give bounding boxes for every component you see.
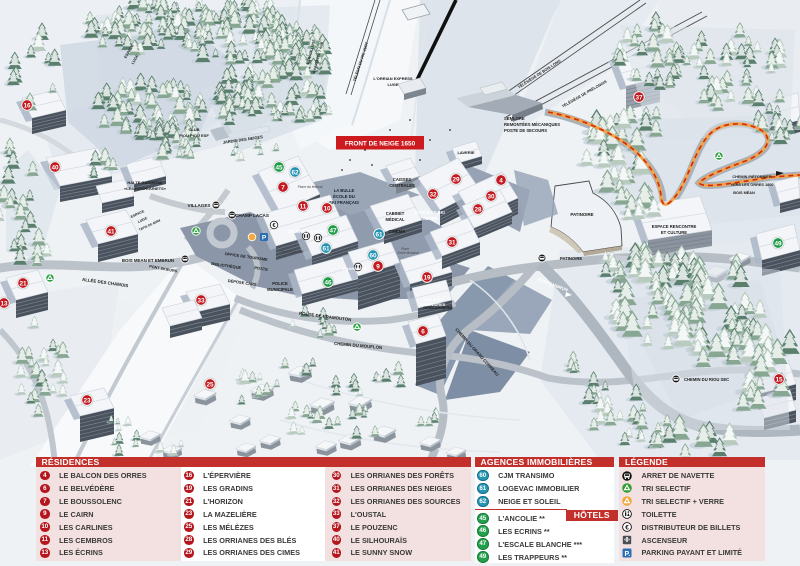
svg-text:PATINOIRE: PATINOIRE [570,212,593,217]
svg-text:Emile Mondval: Emile Mondval [398,251,419,255]
svg-text:46: 46 [324,279,332,286]
svg-text:28: 28 [474,206,482,213]
svg-text:37: 37 [635,94,643,101]
svg-text:BOIS MEAN ET EMBRUN: BOIS MEAN ET EMBRUN [122,258,174,263]
svg-text:15: 15 [775,376,783,383]
svg-text:7: 7 [281,184,285,191]
svg-text:60: 60 [369,252,377,259]
svg-text:25: 25 [206,381,214,388]
svg-text:61: 61 [322,245,330,252]
svg-text:«LES PITCHOUNETS»: «LES PITCHOUNETS» [124,186,167,191]
svg-text:REMONTÉES MÉCANIQUES: REMONTÉES MÉCANIQUES [504,122,560,127]
svg-text:CHAMP LACAS: CHAMP LACAS [235,213,269,218]
svg-text:POLICE: POLICE [272,281,288,286]
svg-text:VERS LES ORRES 1800: VERS LES ORRES 1800 [731,183,774,187]
svg-text:CHEMIN DU RIOU SEC: CHEMIN DU RIOU SEC [684,377,729,382]
svg-text:19: 19 [423,274,431,281]
svg-text:PIOU PIOU ESF: PIOU PIOU ESF [179,133,209,138]
svg-text:40: 40 [51,164,59,171]
svg-text:47: 47 [329,227,337,234]
svg-text:16: 16 [23,102,31,109]
svg-text:CHEMIN PIÉTONNIER: CHEMIN PIÉTONNIER [732,174,771,179]
svg-text:CABINET: CABINET [386,211,405,216]
svg-text:MUNICIPALE: MUNICIPALE [267,287,293,292]
svg-text:BOIS MÉAN: BOIS MÉAN [733,190,755,195]
svg-text:49: 49 [774,240,782,247]
svg-text:CAISSES: CAISSES [393,177,412,182]
svg-text:POSTE DE SECOURS: POSTE DE SECOURS [504,128,547,133]
svg-text:13: 13 [0,300,8,307]
svg-text:9: 9 [376,263,380,270]
svg-text:LA BULLE: LA BULLE [334,188,355,193]
svg-text:SEMLORE: SEMLORE [504,116,525,121]
svg-text:62: 62 [291,169,299,176]
svg-text:PHARMACIE: PHARMACIE [343,266,368,271]
svg-text:61: 61 [375,231,383,238]
svg-text:4: 4 [499,177,503,184]
svg-text:23: 23 [83,397,91,404]
svg-text:SKI FRANÇAIS: SKI FRANÇAIS [329,200,359,205]
svg-text:LUGE: LUGE [387,82,398,87]
svg-text:MÉDICAL: MÉDICAL [385,217,405,222]
svg-text:GENDARMERIE: GENDARMERIE [423,305,453,310]
svg-text:OZONE: OZONE [423,216,438,221]
svg-text:CLUB: CLUB [188,127,199,132]
svg-text:10: 10 [323,205,331,212]
svg-text:31: 31 [448,239,456,246]
svg-text:ÉCOLE DE SKI: ÉCOLE DE SKI [415,210,445,215]
svg-text:ÉCOLE DU: ÉCOLE DU [333,194,355,199]
svg-text:Place d'accueil: Place d'accueil [281,250,304,254]
svg-text:ET CULTURE: ET CULTURE [661,230,687,235]
svg-text:CENTRALES: CENTRALES [389,183,415,188]
svg-text:21: 21 [19,280,27,287]
svg-text:41: 41 [107,228,115,235]
svg-text:30: 30 [487,193,495,200]
svg-text:FRONT DE NEIGE 1650: FRONT DE NEIGE 1650 [345,141,416,148]
svg-text:P: P [262,234,267,241]
svg-text:VILLAGES: VILLAGES [188,203,211,208]
svg-text:P.: P. [625,551,631,558]
svg-text:CINÉMA: CINÉMA [388,229,406,234]
svg-text:€: € [625,524,629,531]
svg-text:6: 6 [421,328,425,335]
svg-text:Place du festival: Place du festival [298,185,323,189]
svg-text:33: 33 [197,297,205,304]
svg-text:PATINOIRE: PATINOIRE [560,256,582,261]
svg-text:ESPACE RENCONTRE: ESPACE RENCONTRE [652,224,697,229]
svg-text:LAVERIE: LAVERIE [457,150,474,155]
svg-text:29: 29 [452,176,460,183]
svg-text:45: 45 [275,164,283,171]
svg-text:L'ORRIAN EXPRESS: L'ORRIAN EXPRESS [373,76,413,81]
svg-text:HALTE GARDERIE: HALTE GARDERIE [127,180,163,185]
svg-text:11: 11 [300,203,307,210]
svg-text:32: 32 [429,191,437,198]
